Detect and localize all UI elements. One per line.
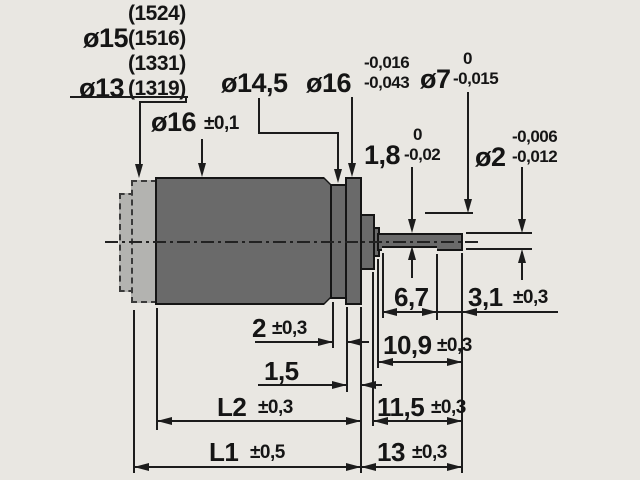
- body-length-value: L2: [217, 394, 246, 420]
- extension-line: [377, 259, 379, 368]
- arrowhead: [346, 417, 361, 425]
- leader-line: [337, 132, 339, 171]
- shaft-dia-tolerance: -0,006 -0,012: [512, 127, 557, 167]
- flat-tolerance: 0 -0,02: [404, 125, 440, 165]
- arrowhead: [518, 249, 526, 263]
- collar-width-value: 2: [252, 315, 266, 341]
- boss-tol-upper: 0: [463, 49, 498, 69]
- arrowhead: [135, 164, 143, 178]
- shaft-tol-lower: -0,012: [512, 147, 557, 167]
- leader-line: [201, 139, 203, 165]
- leader-line: [521, 167, 523, 221]
- dia15-label: ø15: [83, 25, 128, 52]
- arrowhead: [464, 199, 472, 213]
- dimension-line: [157, 420, 361, 422]
- arrowhead: [348, 163, 356, 177]
- leader-line: [258, 132, 339, 134]
- variant-1524: (1524): [128, 3, 186, 24]
- extension-line: [133, 310, 135, 473]
- leader-line: [351, 97, 353, 165]
- collar-dia-label: ø14,5: [221, 70, 288, 97]
- leader-line: [139, 101, 187, 103]
- flange-dia-label: ø16: [306, 70, 351, 97]
- arrowhead: [318, 338, 333, 346]
- shaft-ext-washer-tol: ±0,3: [437, 336, 472, 355]
- arrowhead: [134, 463, 149, 471]
- arrowhead: [422, 308, 437, 316]
- collar-width-tol: ±0,3: [272, 319, 307, 338]
- flange-dia-tolerance: -0,016 -0,043: [364, 53, 409, 93]
- overall-length-tol: ±0,5: [250, 443, 285, 462]
- arrowhead: [378, 358, 393, 366]
- body-dia-label: ø16: [151, 109, 196, 136]
- arrowhead: [332, 381, 347, 389]
- tip-length-tol: ±0,3: [513, 288, 548, 307]
- variant-underline: [70, 96, 188, 98]
- flat-tol-lower: -0,02: [404, 145, 440, 165]
- arrowhead: [347, 338, 362, 346]
- boss-dia-label: ø7: [420, 66, 451, 93]
- shaft-ext-flange-tol: ±0,3: [412, 443, 447, 462]
- arrowhead: [382, 308, 397, 316]
- arrowhead: [408, 246, 416, 260]
- body-dia-tol: ±0,1: [204, 114, 239, 133]
- shaft-ext-boss-tol: ±0,3: [431, 398, 466, 417]
- technical-drawing: (1524) ø15 (1516) (1331) ø13 (1319) ø16 …: [0, 0, 640, 480]
- arrowhead: [518, 219, 526, 233]
- flange-tol-upper: -0,016: [364, 53, 409, 73]
- arrowhead: [447, 417, 462, 425]
- tip-length-value: 3,1: [468, 284, 503, 310]
- flat-tol-upper: 0: [413, 125, 440, 145]
- flat-dim-label: 1,8: [364, 142, 400, 169]
- arrowhead: [198, 163, 206, 177]
- shaft-ext-flange-value: 13: [377, 439, 405, 465]
- extension-line: [346, 307, 348, 392]
- extension-line: [156, 308, 158, 430]
- arrowhead: [408, 219, 416, 233]
- arrowhead: [373, 417, 388, 425]
- boss-dia-tolerance: 0 -0,015: [453, 49, 498, 89]
- centerline: [105, 241, 480, 243]
- flat-length-value: 6,7: [394, 284, 429, 310]
- extension-line: [372, 272, 374, 426]
- shaft-dia-label: ø2: [475, 144, 506, 171]
- flange-width-value: 1,5: [264, 358, 299, 384]
- arrowhead: [447, 463, 462, 471]
- shaft-tol-upper: -0,006: [512, 127, 557, 147]
- arrowhead: [462, 308, 477, 316]
- arrowhead: [361, 463, 376, 471]
- body-length-tol: ±0,3: [258, 398, 293, 417]
- boss-tol-lower: -0,015: [453, 69, 498, 89]
- extension-line: [360, 307, 362, 473]
- dimension-line: [437, 311, 462, 313]
- dimension-line: [134, 466, 361, 468]
- leader-line: [258, 98, 260, 134]
- flange-tol-lower: -0,043: [364, 73, 409, 93]
- shaft-ext-washer-value: 10,9: [383, 332, 432, 358]
- arrowhead: [361, 381, 376, 389]
- variant-1516: (1516): [128, 28, 186, 49]
- arrowhead: [157, 417, 172, 425]
- leader-line: [411, 167, 413, 221]
- arrowhead: [447, 358, 462, 366]
- leader-line: [139, 101, 141, 165]
- arrowhead: [346, 463, 361, 471]
- overall-length-value: L1: [209, 439, 238, 465]
- extension-line: [425, 212, 473, 214]
- variant-1331: (1331): [128, 53, 186, 74]
- leader-line: [467, 92, 469, 202]
- arrowhead: [334, 169, 342, 183]
